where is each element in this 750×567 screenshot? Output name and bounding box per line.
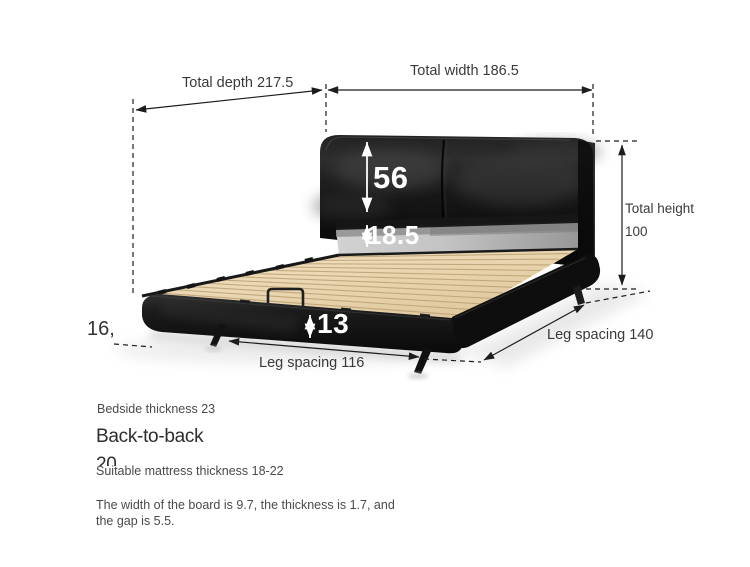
back-to-back-label: Back-to-back [96, 426, 203, 448]
leg-spacing-side-label: Leg spacing 140 [547, 327, 653, 343]
leg-spacing-front-label: Leg spacing 116 [259, 355, 364, 371]
total-height-label: Total height [625, 201, 694, 216]
board-spec-note: The width of the board is 9.7, the thick… [96, 497, 414, 530]
backrest-height-value: 18.5 [367, 220, 420, 251]
bed-dimension-diagram: Total depth 217.5 Total width 186.5 Tota… [0, 0, 750, 567]
bed-illustration [0, 0, 750, 567]
bedside-thickness-note: Bedside thickness 23 [97, 402, 215, 416]
headboard-height-value: 56 [373, 160, 408, 196]
depth-dimension-line [136, 90, 322, 110]
total-depth-label: Total depth 217.5 [182, 75, 293, 91]
rail-height-value: 13 [317, 308, 349, 340]
mattress-thickness-note: Suitable mattress thickness 18-22 [96, 464, 284, 478]
total-width-label: Total width 186.5 [410, 63, 519, 79]
clipped-left-measurement: 16, [87, 318, 115, 341]
total-height-value: 100 [625, 224, 648, 239]
